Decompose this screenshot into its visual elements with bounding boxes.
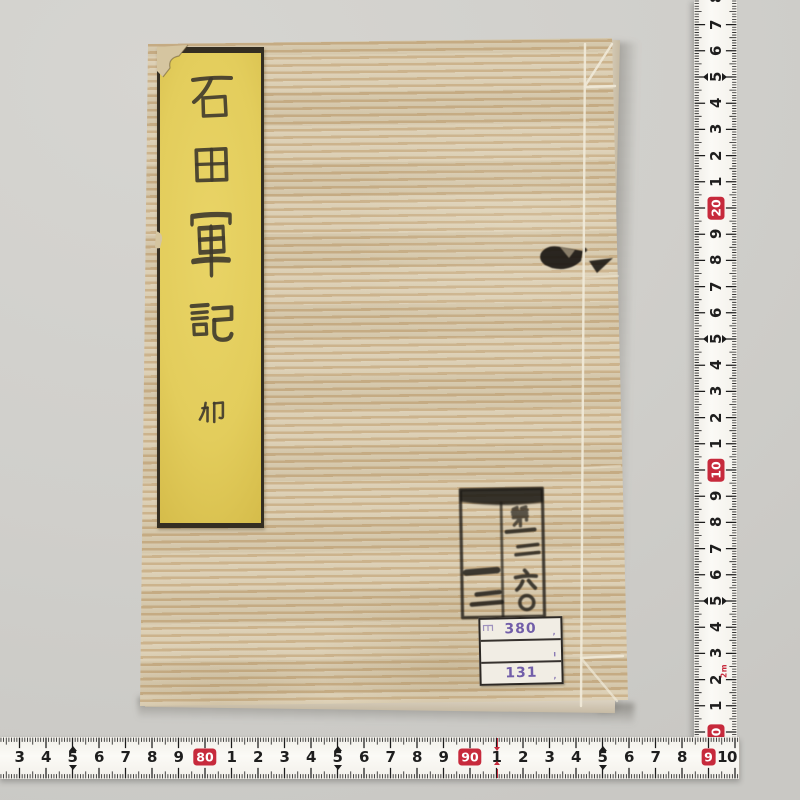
ruler-number: 2 — [253, 748, 263, 766]
ruler-ticks — [694, 0, 737, 758]
ruler-number: 10 — [717, 748, 737, 766]
ruler-number: 7 — [386, 748, 396, 766]
ruler-number: 3 — [707, 124, 725, 134]
ruler-number: 2 — [518, 748, 528, 766]
tape-meter-note: 2m — [720, 664, 729, 678]
shaku-red-arrow — [494, 761, 500, 765]
ruler-number: 8 — [707, 255, 725, 265]
five-cm-arrow — [703, 335, 708, 343]
book-cover: 石田軍記 卯 — [0, 0, 800, 800]
horizontal-ruler-tape: 23456789801234567899012345678910 — [0, 737, 740, 779]
five-cm-arrow — [722, 73, 727, 81]
five-cm-arrow — [599, 765, 607, 770]
ruler-number: 9 — [174, 748, 184, 766]
ruler-number: 7 — [707, 282, 725, 292]
shaku-red-arrow — [494, 747, 500, 751]
cover-edge-shading — [0, 0, 800, 800]
ruler-number: 4 — [707, 360, 725, 370]
ruler-number-red: 90 — [458, 749, 481, 766]
five-cm-arrow — [334, 746, 342, 751]
ruler-number: 8 — [147, 748, 157, 766]
ruler-number-red: 20 — [707, 196, 724, 219]
five-cm-arrow — [722, 335, 727, 343]
ruler-number: 2 — [707, 413, 725, 423]
ruler-number-red: 80 — [193, 749, 216, 766]
five-cm-arrow — [703, 597, 708, 605]
ruler-number: 4 — [41, 748, 51, 766]
ruler-number: 3 — [707, 386, 725, 396]
five-cm-arrow — [599, 746, 607, 751]
ruler-number-red: 9 — [701, 749, 716, 766]
five-cm-arrow — [722, 597, 727, 605]
ruler-number: 6 — [707, 46, 725, 56]
ruler-number: 4 — [306, 748, 316, 766]
ruler-number: 9 — [707, 491, 725, 501]
ruler-number: 6 — [707, 308, 725, 318]
ruler-number: 7 — [707, 544, 725, 554]
ruler-number: 6 — [359, 748, 369, 766]
ruler-number: 3 — [280, 748, 290, 766]
ruler-number: 8 — [677, 748, 687, 766]
ruler-number: 9 — [439, 748, 449, 766]
photo-scene: 石田軍記 卯 — [0, 0, 800, 800]
ruler-number: 1 — [707, 177, 725, 187]
ruler-number: 8 — [412, 748, 422, 766]
five-cm-arrow — [69, 746, 77, 751]
ruler-number: 7 — [707, 20, 725, 30]
ruler-number: 1 — [707, 439, 725, 449]
ruler-number: 6 — [707, 570, 725, 580]
ruler-number: 3 — [545, 748, 555, 766]
ruler-number: 4 — [571, 748, 581, 766]
ruler-number: 1 — [707, 701, 725, 711]
ruler-number: 6 — [94, 748, 104, 766]
ruler-number: 7 — [651, 748, 661, 766]
shaku-red-mark — [497, 769, 499, 778]
ruler-number-red: 10 — [707, 458, 724, 481]
vertical-ruler-tape: 01234567891012345678920123456782m — [694, 0, 737, 758]
shaku-red-mark — [497, 738, 499, 747]
ruler-number: 3 — [707, 648, 725, 658]
five-cm-arrow — [703, 73, 708, 81]
ruler-number: 4 — [707, 622, 725, 632]
ruler-number: 6 — [624, 748, 634, 766]
ruler-number: 7 — [121, 748, 131, 766]
ruler-number: 3 — [15, 748, 25, 766]
five-cm-arrow — [334, 765, 342, 770]
ruler-number: 4 — [707, 98, 725, 108]
ruler-number: 8 — [707, 517, 725, 527]
ruler-number: 8 — [707, 0, 725, 3]
ruler-number: 2 — [707, 151, 725, 161]
ruler-number: 1 — [227, 748, 237, 766]
five-cm-arrow — [69, 765, 77, 770]
ruler-number: 9 — [707, 229, 725, 239]
